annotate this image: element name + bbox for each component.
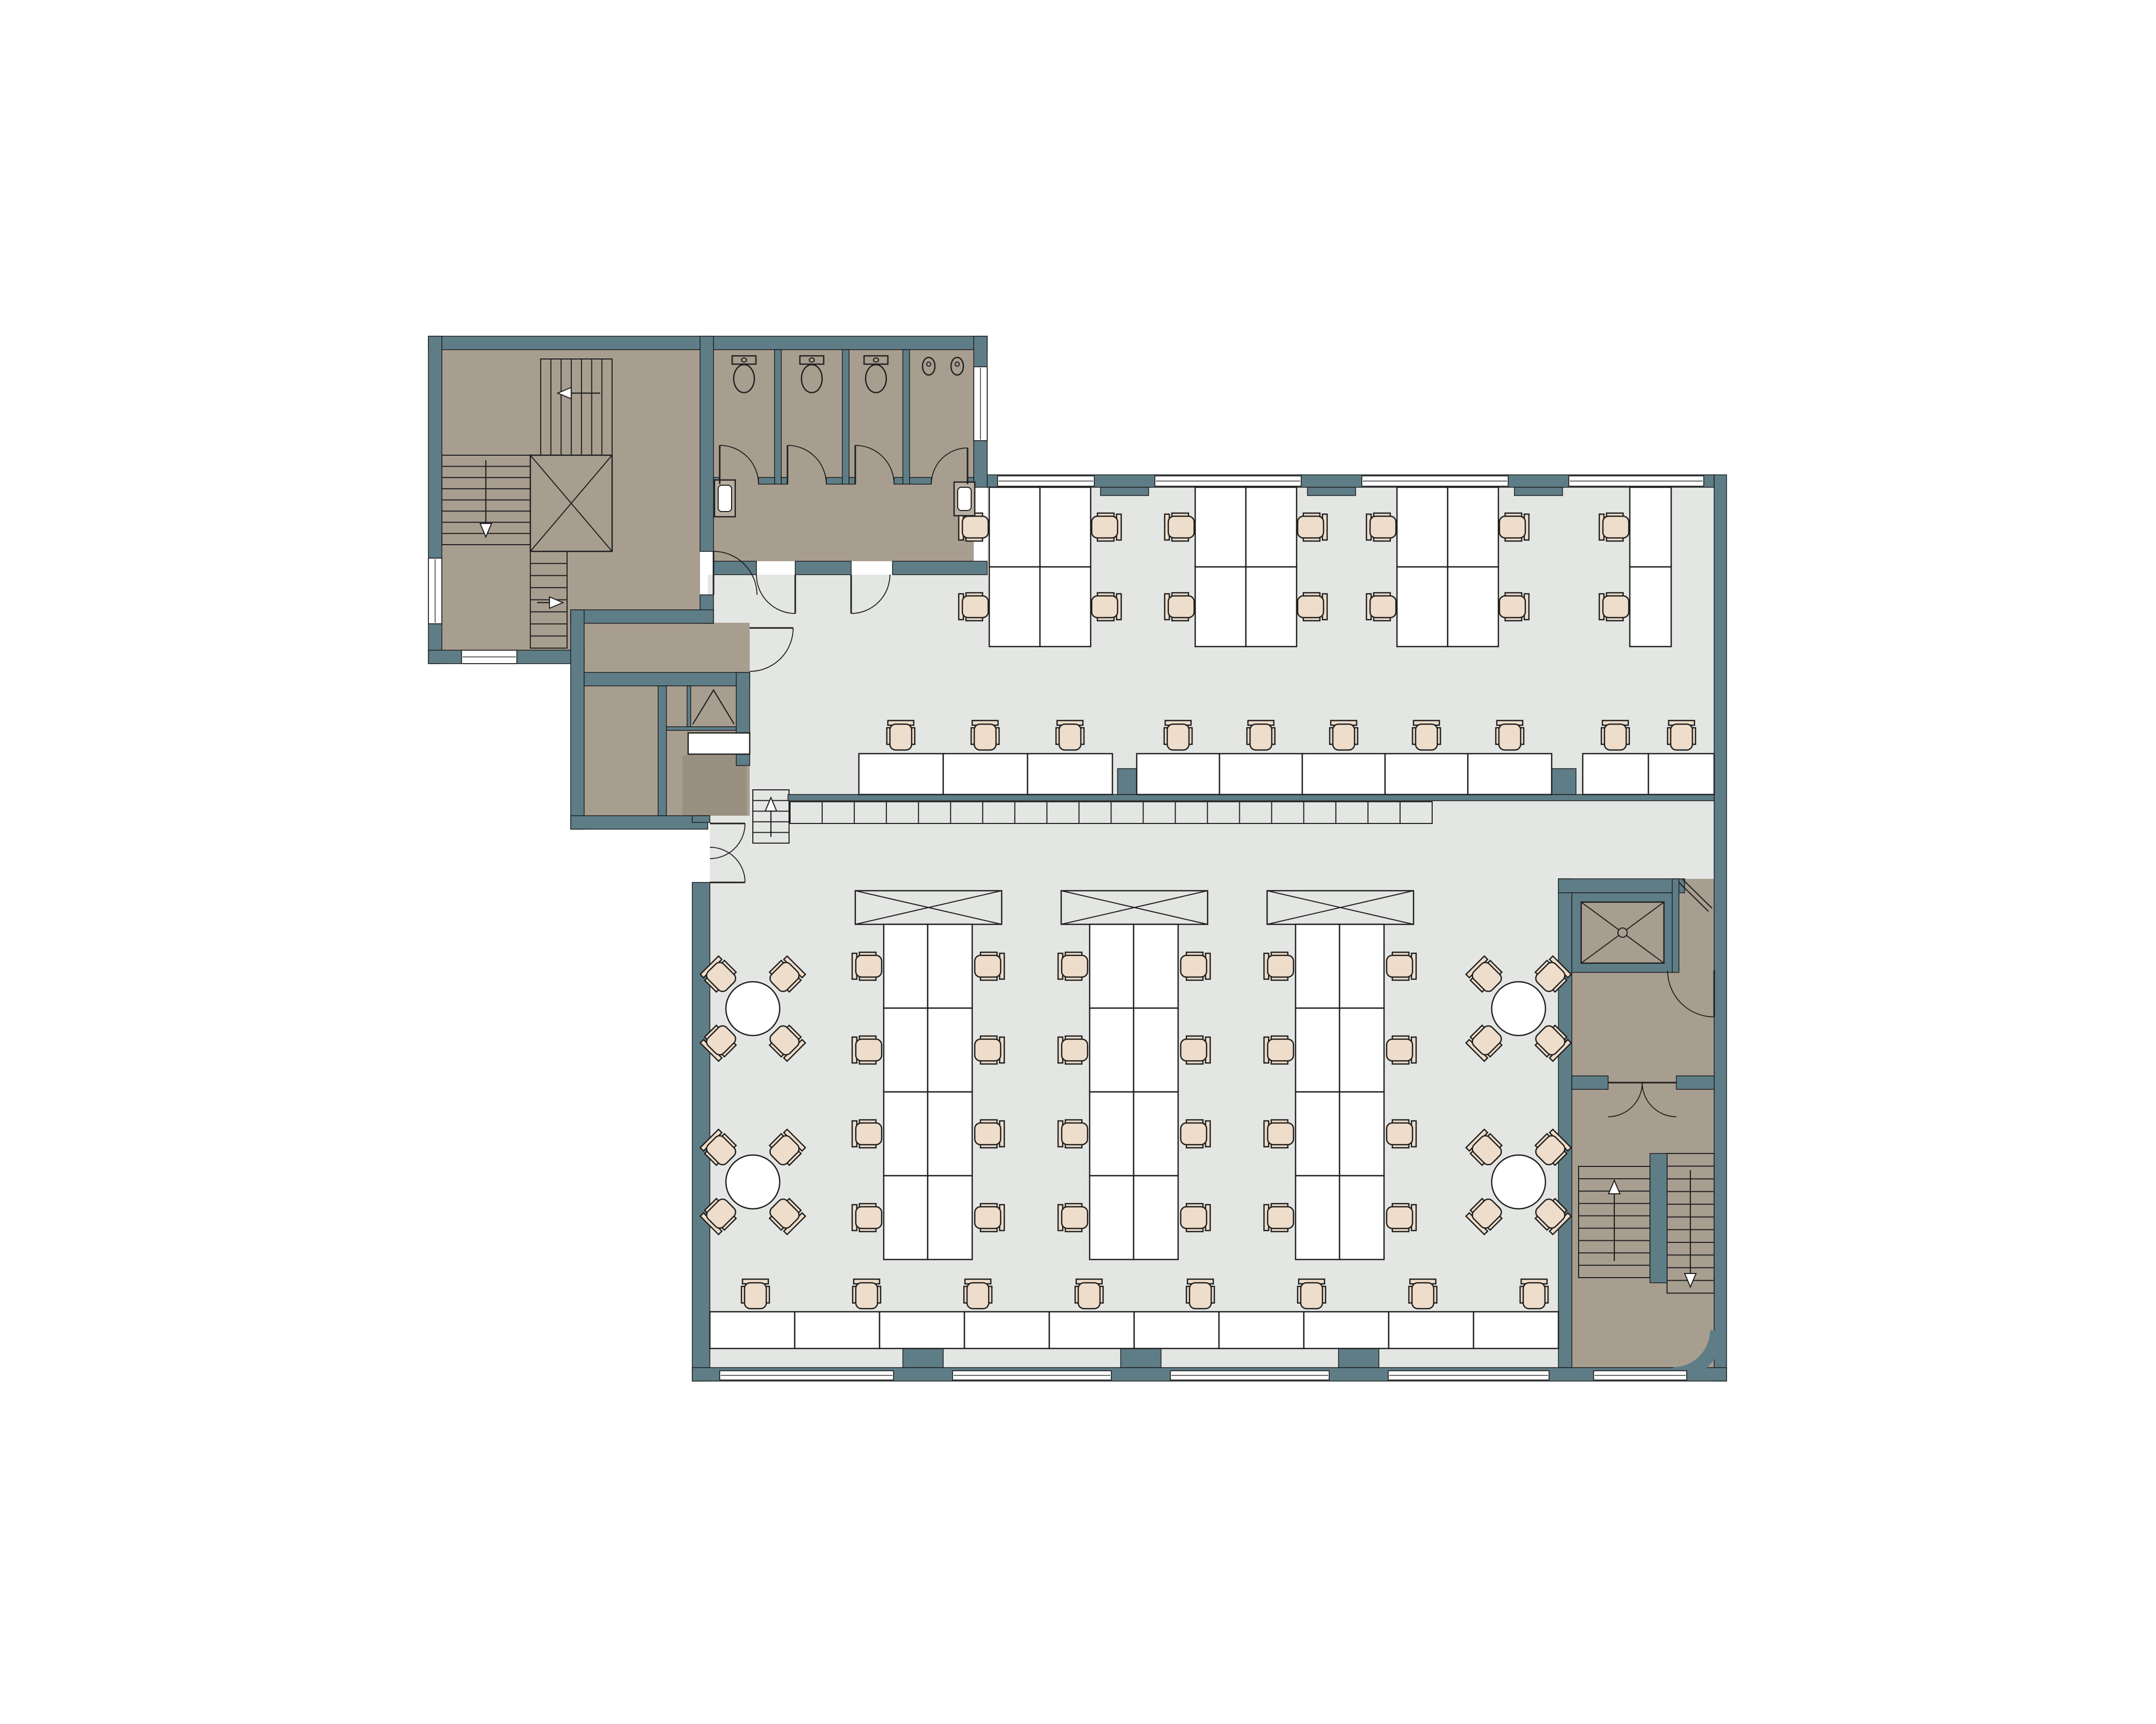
chair [1599, 593, 1629, 621]
wall-bath-bottom-1 [713, 561, 756, 575]
chair-seat [1268, 955, 1293, 977]
round-table [726, 982, 780, 1036]
desk [1134, 1092, 1178, 1176]
chair [1599, 513, 1629, 541]
desk [1090, 1092, 1134, 1176]
chair [1499, 593, 1529, 621]
wall-vestibule-div [1672, 879, 1679, 972]
wall-core-bottom-right [571, 610, 713, 623]
toilet-tank [732, 356, 756, 364]
desk [1304, 1312, 1389, 1348]
desk [1296, 924, 1340, 1008]
desk [1040, 487, 1091, 567]
toilet [800, 356, 824, 393]
chair-seat [1062, 1039, 1088, 1061]
wall-core-right-upper [700, 336, 713, 551]
wall-strip-right-2 [736, 754, 750, 766]
wall-urinal-stub-l [910, 477, 931, 484]
chair-seat [1603, 596, 1629, 618]
chair-seat [1092, 516, 1118, 538]
chair-seat [967, 1283, 989, 1309]
wall-strip-bottom [571, 816, 708, 829]
desk [989, 487, 1040, 567]
chair [1366, 513, 1396, 541]
desk [1134, 1312, 1219, 1348]
chair-seat [856, 1123, 882, 1145]
chair [1264, 1036, 1293, 1064]
chair-seat [1387, 1123, 1412, 1145]
desk [1090, 924, 1134, 1008]
desk [795, 1312, 880, 1348]
urinal [923, 357, 935, 375]
wall-bath-bottom-2 [795, 561, 851, 575]
chair [1058, 1036, 1088, 1064]
desk [964, 1312, 1049, 1348]
wall-stall-div-2 [842, 350, 849, 484]
chair [1058, 952, 1088, 980]
chair [1668, 721, 1696, 750]
chair-seat [1412, 1283, 1434, 1309]
chair [852, 1120, 882, 1148]
chair-seat [975, 1123, 1001, 1145]
wall-stall-stub-2l [781, 477, 787, 484]
chair [1164, 721, 1192, 750]
window-bottom-4 [1388, 1371, 1549, 1380]
desk [884, 1092, 928, 1176]
chair-seat [975, 955, 1001, 977]
desk [1049, 1312, 1134, 1348]
chair-seat [745, 1283, 766, 1309]
window-top-2 [1155, 476, 1301, 486]
chair [1298, 1279, 1326, 1309]
chair [1181, 1204, 1210, 1232]
shaft-core [530, 455, 612, 551]
chair [741, 1279, 769, 1309]
chair-seat [1523, 1283, 1545, 1309]
wall-divider-stub-2 [1552, 769, 1576, 794]
desk [1090, 1008, 1134, 1092]
window-bottom-3 [1170, 1371, 1329, 1380]
chair [975, 1120, 1004, 1148]
desk [943, 754, 1028, 794]
desk [1630, 487, 1671, 567]
desk [1195, 567, 1246, 647]
wall-stall-stub-1r [759, 477, 775, 484]
chair [1264, 1120, 1293, 1148]
desk [1474, 1312, 1558, 1348]
wall-bottom-pier-3 [1339, 1348, 1379, 1368]
chair [852, 952, 882, 980]
wall-stall-stub-3r [894, 477, 903, 484]
chair [1387, 952, 1416, 980]
chair [1092, 513, 1121, 541]
chair [975, 952, 1004, 980]
wall-divider-mid [788, 794, 1714, 801]
window-core-left [428, 558, 442, 624]
chair [1264, 952, 1293, 980]
toilet-bowl [734, 365, 754, 393]
chair [1075, 1279, 1103, 1309]
desk [1134, 1176, 1178, 1260]
chair [1412, 721, 1440, 750]
desk [1648, 754, 1714, 794]
desk [1468, 754, 1552, 794]
chair-seat [1181, 1207, 1207, 1228]
urinal [951, 357, 963, 375]
sink [954, 482, 975, 516]
chair [1181, 1036, 1210, 1064]
desk [1397, 567, 1448, 647]
chair-seat [1168, 596, 1194, 618]
wall-stall-stub-3l [849, 477, 855, 484]
chair-seat [1078, 1283, 1100, 1309]
chair-seat [1671, 724, 1692, 750]
elevator-cab [1581, 902, 1664, 963]
chair [852, 1036, 882, 1064]
sink [715, 480, 735, 517]
wall-pier-foot-3 [1514, 487, 1563, 496]
chair-seat [856, 1207, 882, 1228]
window-bottom-2 [953, 1371, 1111, 1380]
chair-seat [1059, 724, 1081, 750]
desk [880, 1312, 964, 1348]
desk [1246, 567, 1297, 647]
chair [1186, 1279, 1214, 1309]
chair-seat [1604, 724, 1626, 750]
desk [1219, 1312, 1304, 1348]
chair-seat [1301, 1283, 1322, 1309]
wall-bottom-pier-2 [1121, 1348, 1161, 1368]
desk [1448, 487, 1498, 567]
wall-lobby-stub-l [1572, 1076, 1608, 1089]
chair-seat [975, 1207, 1001, 1228]
window-top-4 [1569, 476, 1704, 486]
desk [1340, 1176, 1384, 1260]
chair-seat [962, 596, 988, 618]
chair [1092, 593, 1121, 621]
chair-seat [1189, 1283, 1211, 1309]
desk [1040, 567, 1091, 647]
chair-seat [1603, 516, 1629, 538]
toilet [864, 356, 888, 393]
desk [1296, 1092, 1340, 1176]
window-top-1 [998, 476, 1094, 486]
chair [959, 513, 988, 541]
desk [1137, 754, 1220, 794]
desk [928, 1008, 972, 1092]
chair-seat [1499, 724, 1521, 750]
elevator-cab-center [1618, 928, 1627, 937]
wall-lobby-stub-r [1676, 1076, 1714, 1089]
chair-seat [1387, 955, 1412, 977]
chair-seat [1167, 724, 1189, 750]
desk [1296, 1008, 1340, 1092]
desk [1220, 754, 1302, 794]
chair-seat [890, 724, 912, 750]
window-bath-right [974, 367, 987, 441]
chair-seat [1298, 516, 1324, 538]
chair [1264, 1204, 1293, 1232]
chair-seat [856, 1283, 878, 1309]
chair [1165, 593, 1194, 621]
desk [1028, 754, 1112, 794]
chair [1601, 721, 1629, 750]
chair-seat [1333, 724, 1355, 750]
desk [1195, 487, 1246, 567]
chair [1520, 1279, 1548, 1309]
chair-seat [1181, 955, 1207, 977]
wall-stall-stub-2r [826, 477, 842, 484]
chair-seat [1062, 955, 1088, 977]
storage-unit-3 [1267, 891, 1414, 924]
toilet-tank [800, 356, 824, 364]
chair-seat [1499, 596, 1525, 618]
desk [710, 1312, 795, 1348]
toilet [732, 356, 756, 393]
desk [884, 1176, 928, 1260]
window-core-bottom [462, 650, 517, 664]
chair [1298, 593, 1327, 621]
desk [928, 924, 972, 1008]
chair-seat [1181, 1123, 1207, 1145]
chair [975, 1036, 1004, 1064]
chair [964, 1279, 992, 1309]
chair-seat [1416, 724, 1437, 750]
chair [975, 1204, 1004, 1232]
chair [852, 1204, 882, 1232]
chair-seat [1370, 516, 1396, 538]
chair [959, 593, 988, 621]
wall-pier-foot-1 [1101, 487, 1149, 496]
desk [1340, 1008, 1384, 1092]
chair [1181, 952, 1210, 980]
chair-seat [1250, 724, 1272, 750]
chair-seat [1387, 1039, 1412, 1061]
chair [1058, 1120, 1088, 1148]
chair-seat [1062, 1207, 1088, 1228]
chair [1165, 513, 1194, 541]
desk [1134, 1008, 1178, 1092]
locker-row [790, 802, 1432, 823]
chair-seat [1268, 1207, 1293, 1228]
chair-seat [1092, 596, 1118, 618]
desk [859, 754, 943, 794]
chair [1366, 593, 1396, 621]
toilet-bowl [866, 365, 886, 393]
window-bottom-1 [720, 1371, 894, 1380]
chair [1056, 721, 1084, 750]
floor-plan-canvas [0, 0, 2156, 1724]
chair [971, 721, 999, 750]
desk [1385, 754, 1468, 794]
desk [884, 1008, 928, 1092]
chair [1387, 1036, 1416, 1064]
wall-closet-south [666, 727, 736, 730]
chair [1058, 1204, 1088, 1232]
round-table [726, 1155, 780, 1209]
wall-closet-divider [687, 686, 691, 730]
desk [1340, 924, 1384, 1008]
wall-lower-left-1 [692, 816, 710, 822]
chair [1496, 721, 1524, 750]
desk [1090, 1176, 1134, 1260]
chair-seat [1181, 1039, 1207, 1061]
chair-seat [974, 724, 996, 750]
desk [1134, 924, 1178, 1008]
chair [887, 721, 915, 750]
storage-unit-1 [855, 891, 1002, 924]
sink-basin [718, 485, 732, 512]
chair [1181, 1120, 1210, 1148]
chair [1387, 1204, 1416, 1232]
chair-seat [1370, 596, 1396, 618]
chair [853, 1279, 881, 1309]
chair-seat [856, 1039, 882, 1061]
chair-seat [856, 955, 882, 977]
chair-seat [1268, 1123, 1293, 1145]
desk [989, 567, 1040, 647]
desk [928, 1092, 972, 1176]
wall-right [1714, 475, 1727, 1381]
window-top-3 [1362, 476, 1508, 486]
chair [1387, 1120, 1416, 1148]
floor-plan-page [0, 0, 2156, 1724]
wall-stall-div-1 [775, 350, 781, 484]
wall-pier-foot-2 [1307, 487, 1356, 496]
desk [1296, 1176, 1340, 1260]
round-table [1492, 1155, 1545, 1209]
counter [688, 733, 750, 754]
chair-seat [1062, 1123, 1088, 1145]
desk [928, 1176, 972, 1260]
wall-strip-left [571, 610, 584, 829]
round-table [1492, 982, 1545, 1036]
wall-corridor-south [584, 672, 750, 686]
desk [1630, 567, 1671, 647]
wall-bottom-pier-1 [903, 1348, 943, 1368]
desk [1246, 487, 1297, 567]
desk [1340, 1092, 1384, 1176]
desk [1583, 754, 1648, 794]
chair [1298, 513, 1327, 541]
desk [1397, 487, 1448, 567]
wall-room-divider [658, 686, 666, 816]
wall-lower-left-2 [692, 882, 710, 1381]
window-bottom-core [1594, 1371, 1687, 1380]
desk [884, 924, 928, 1008]
wall-stair-flight-div [1650, 1153, 1667, 1283]
chair [1330, 721, 1358, 750]
desk [1389, 1312, 1474, 1348]
chair-seat [1499, 516, 1525, 538]
chair-seat [975, 1039, 1001, 1061]
wall-strip-right-1 [736, 672, 750, 733]
wall-right-core-left [1558, 879, 1572, 1368]
chair [1409, 1279, 1437, 1309]
desk [1302, 754, 1385, 794]
desk [1448, 567, 1498, 647]
stairs-core-bottom [530, 551, 567, 648]
chair-seat [962, 516, 988, 538]
chair-seat [1168, 516, 1194, 538]
chair [1499, 513, 1529, 541]
chair-seat [1268, 1039, 1293, 1061]
stairs-core-top [541, 359, 612, 455]
sink-basin [958, 487, 971, 511]
chair [1247, 721, 1275, 750]
storage-unit-2 [1061, 891, 1208, 924]
wall-bath-bottom-3 [893, 561, 987, 575]
toilet-bowl [801, 365, 822, 393]
wall-stall-div-3 [903, 350, 910, 484]
chair-seat [1298, 596, 1324, 618]
wall-right-core-top [1558, 879, 1685, 893]
toilet-tank [864, 356, 888, 364]
chair-seat [1387, 1207, 1412, 1228]
